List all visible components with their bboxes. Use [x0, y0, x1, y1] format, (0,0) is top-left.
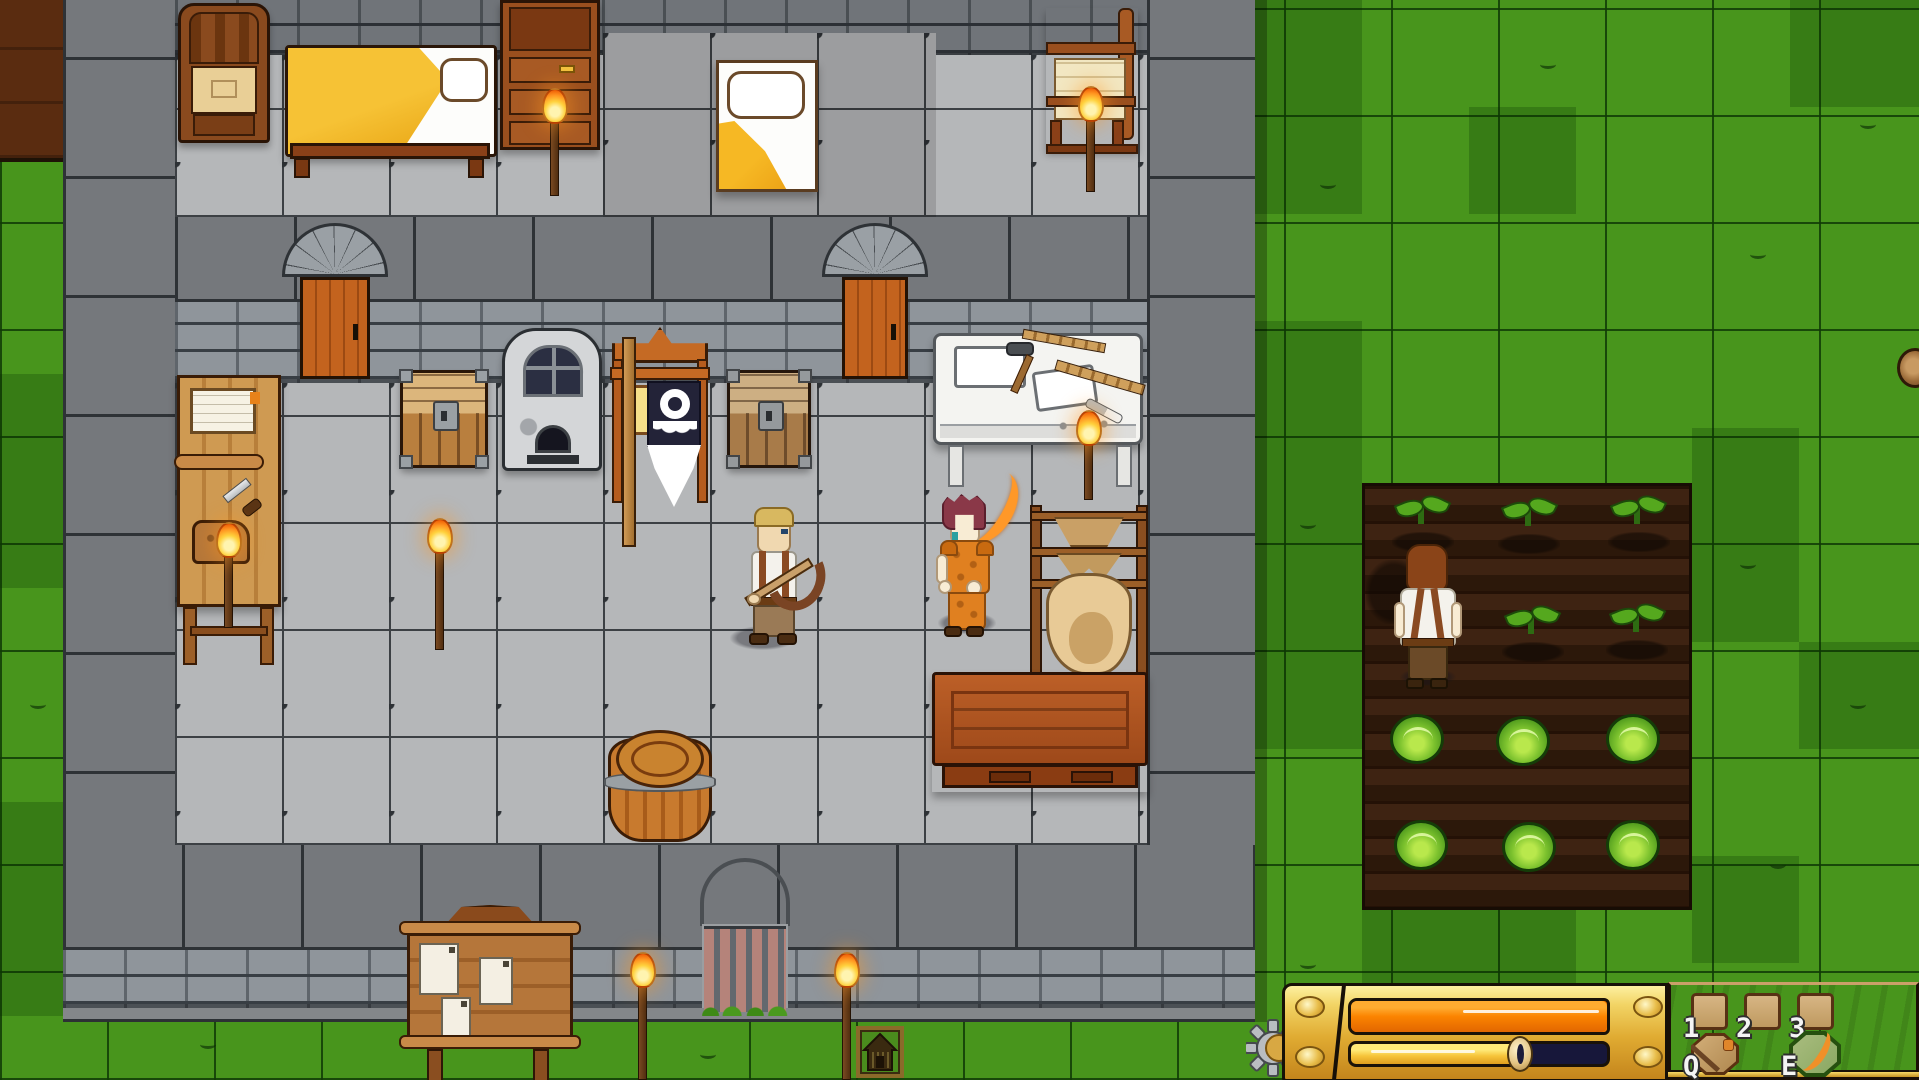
- soil-mound: [1498, 534, 1560, 554]
- hotbar-key-e: E: [1781, 1053, 1797, 1080]
- rail-slat: [1071, 771, 1113, 783]
- building-shadow: [1255, 0, 1267, 1022]
- bottom-wall-lip: [63, 1008, 1255, 1022]
- chest-corner: [798, 369, 812, 383]
- farmer-shoe: [1430, 678, 1448, 689]
- chest-corner: [798, 455, 812, 469]
- measuring-stick: [1022, 329, 1106, 353]
- board-cap: [399, 1035, 581, 1049]
- grass-tuft: [1300, 960, 1316, 969]
- progress-bar-fill: [1351, 1044, 1530, 1064]
- torch-pole: [1086, 114, 1095, 192]
- furnace-window: [523, 345, 583, 397]
- grass-shade-tile: [0, 802, 63, 1016]
- torch-pole: [224, 550, 233, 628]
- hotbar-key-2: 2: [1736, 1015, 1752, 1042]
- grass-shade-tile: [1799, 642, 1919, 749]
- blond-villager[interactable]: [733, 505, 803, 651]
- house-sign[interactable]: [856, 1026, 904, 1078]
- work-table[interactable]: [932, 672, 1148, 792]
- grass-tuft: [1540, 60, 1556, 69]
- plank-door[interactable]: [842, 277, 908, 379]
- farmer-arm: [1451, 602, 1462, 638]
- chest-corner: [399, 369, 413, 383]
- gear-emblem-hole: [668, 397, 682, 411]
- chest-corner: [475, 455, 489, 469]
- cabbage-crop[interactable]: [1496, 716, 1550, 766]
- posted-note[interactable]: [419, 943, 459, 995]
- warrior-legs: [948, 592, 986, 630]
- torch-pole: [550, 116, 559, 196]
- wooden-chest[interactable]: [727, 370, 811, 468]
- crop-seedling[interactable]: [1633, 616, 1639, 632]
- soil-mound: [1608, 532, 1670, 552]
- grass-shade-tile: [1255, 0, 1362, 214]
- bed-leg: [294, 158, 310, 178]
- grass-tuft: [1860, 120, 1876, 129]
- grass-tuft: [1770, 860, 1786, 869]
- chest-corner: [726, 455, 740, 469]
- cabbage-crop[interactable]: [1394, 820, 1448, 870]
- energy-bar-fill: [1351, 1001, 1607, 1032]
- dresser-drawer: [509, 57, 591, 83]
- stretched-hide: [1046, 573, 1132, 675]
- crop-seedling[interactable]: [1634, 508, 1640, 524]
- furnace-mouth: [535, 425, 571, 453]
- yellow-bed[interactable]: [285, 45, 497, 157]
- warrior-shoulder: [976, 540, 994, 556]
- chest-clasp: [758, 401, 784, 431]
- farmer-hair: [1406, 544, 1448, 592]
- barrel[interactable]: [608, 728, 712, 842]
- chest-corner: [475, 369, 489, 383]
- rack-post: [1030, 505, 1042, 675]
- guild-banner-stand: [610, 327, 710, 549]
- energy-bar-shine: [1463, 1010, 1599, 1013]
- panel-chamfer: [1332, 986, 1346, 1079]
- seed-marker-icon[interactable]: [1507, 1036, 1533, 1072]
- progress-bar-frame: [1348, 1041, 1610, 1067]
- chair-seat-cross: [211, 80, 237, 98]
- cabbage-crop[interactable]: [1606, 820, 1660, 870]
- rack-post: [1136, 505, 1148, 675]
- stone-furnace[interactable]: [502, 328, 602, 471]
- hotbar-key-1: 1: [1683, 1015, 1699, 1042]
- bed-pillow: [440, 58, 488, 102]
- warrior-shoe: [944, 626, 962, 637]
- rolling-pin: [174, 454, 264, 470]
- door-handle: [891, 324, 896, 340]
- small-hide: [1054, 517, 1124, 547]
- mason-table-leg: [1116, 445, 1132, 487]
- chair-back-slats: [189, 12, 259, 64]
- chest-corner: [399, 455, 413, 469]
- torch-pole: [435, 546, 444, 650]
- panel-rivet: [1633, 1046, 1663, 1068]
- dirt-patch: [0, 0, 63, 162]
- villager-shoe: [777, 633, 797, 645]
- chest-clasp: [433, 401, 459, 431]
- mason-table-leg: [948, 445, 964, 487]
- status-panel: [1282, 983, 1668, 1080]
- door-handle: [353, 324, 358, 340]
- torch-flame: [427, 518, 453, 554]
- mallet-head: [1006, 342, 1034, 356]
- bed-blanket: [288, 48, 448, 154]
- crop-seedling[interactable]: [1528, 618, 1534, 634]
- farmer-arm: [1394, 602, 1405, 638]
- hotbar-panel: 1 2 3 Q E: [1668, 982, 1919, 1080]
- dresser-handle: [559, 65, 575, 73]
- farmer[interactable]: [1396, 544, 1460, 692]
- torch-pole: [638, 980, 647, 1080]
- work-table-top: [932, 672, 1148, 766]
- torch-pole: [842, 980, 851, 1080]
- notice-board[interactable]: [399, 905, 581, 1080]
- panel-rivet: [1633, 996, 1663, 1018]
- tanning-rack[interactable]: [1030, 503, 1148, 675]
- panel-rivet: [1295, 1046, 1325, 1068]
- warrior-shoe: [966, 626, 984, 637]
- farmer-shoe: [1406, 678, 1424, 689]
- posted-note[interactable]: [441, 997, 471, 1039]
- grass-shade-tile: [1692, 428, 1799, 642]
- hide-patch: [1069, 612, 1113, 664]
- crop-seedling[interactable]: [1418, 508, 1424, 524]
- farmer-legs: [1408, 646, 1448, 680]
- white-bed-pillow: [727, 71, 805, 119]
- furnace-hearth: [527, 455, 579, 464]
- cabbage-crop[interactable]: [1502, 822, 1556, 872]
- torch-pole: [1084, 438, 1093, 500]
- bookmark: [250, 392, 260, 404]
- energy-bar-frame: [1348, 998, 1610, 1035]
- seed-marker-core: [1517, 1044, 1524, 1064]
- cabbage-crop[interactable]: [1390, 714, 1444, 764]
- grass-shade-tile: [1790, 0, 1919, 107]
- grass-tuft: [1300, 520, 1316, 529]
- grass-tuft: [1320, 180, 1336, 189]
- villager-hair: [754, 507, 794, 527]
- grass-shade-tile: [1692, 856, 1799, 963]
- knife-handle: [241, 497, 264, 518]
- grass-tuft: [700, 1050, 716, 1059]
- soil-mound: [1606, 640, 1668, 660]
- board-leg: [533, 1049, 549, 1080]
- crop-seedling[interactable]: [1525, 510, 1531, 526]
- torch-flame: [542, 88, 568, 124]
- chest-corner: [726, 369, 740, 383]
- panel-rivet: [1295, 996, 1325, 1018]
- wooden-chest[interactable]: [400, 370, 488, 468]
- throne-chair[interactable]: [178, 3, 270, 143]
- villager-eye: [781, 529, 788, 534]
- grass-shade-tile: [1469, 107, 1576, 214]
- banner-cloth: [647, 381, 701, 447]
- bottom-wall-bricks: [63, 950, 1255, 1008]
- rail-slat: [989, 771, 1031, 783]
- grass-tuft: [1750, 250, 1766, 259]
- plank-door[interactable]: [300, 277, 370, 379]
- white-bed[interactable]: [716, 60, 818, 192]
- posted-note[interactable]: [479, 957, 513, 1005]
- bakers-table-leg: [183, 607, 197, 665]
- grass-shade-tile: [1255, 321, 1362, 749]
- torch-flame: [1078, 86, 1104, 122]
- tool-head: [1723, 1039, 1734, 1051]
- red-haired-warrior[interactable]: [936, 492, 1016, 642]
- board-leg: [427, 1049, 443, 1080]
- grass-tuft: [200, 1040, 216, 1049]
- house-icon: [862, 1032, 898, 1072]
- grass-tuft: [30, 700, 46, 709]
- bed-leg: [468, 158, 484, 178]
- gate-grass-tufts: [702, 1000, 788, 1016]
- cabbage-crop[interactable]: [1606, 714, 1660, 764]
- villager-hand: [747, 593, 761, 605]
- knife: [222, 478, 251, 504]
- stonemason-table[interactable]: [933, 333, 1143, 445]
- banner-pole: [622, 337, 636, 547]
- barrel-top-ring: [631, 741, 689, 777]
- work-table-panel: [951, 691, 1129, 749]
- hotbar-key-q: Q: [1683, 1053, 1699, 1080]
- chair-front-rail: [193, 114, 255, 136]
- work-table-rail: [942, 764, 1138, 788]
- grass-shade-tile: [0, 374, 63, 588]
- progress-bar-shine: [1371, 1050, 1475, 1053]
- recipe-book: [190, 388, 256, 434]
- gear-emblem-teeth: [653, 421, 697, 445]
- torch-flame: [630, 952, 656, 988]
- torch-flame: [1076, 410, 1102, 446]
- bottom-wall-upper: [63, 845, 1255, 950]
- loom-top-bar: [1046, 42, 1136, 55]
- grass-tuft: [1740, 560, 1756, 569]
- villager-shoe: [749, 633, 769, 645]
- bakers-table-leg: [260, 607, 274, 665]
- yellow-bed-frame: [290, 143, 490, 159]
- torch-flame: [834, 952, 860, 988]
- soil-mound: [1502, 642, 1564, 662]
- dresser-top-panel: [509, 7, 591, 51]
- grass-tuft: [1850, 700, 1866, 709]
- warrior-earring: [952, 532, 958, 540]
- game-viewport: 1 2 3 Q E: [0, 0, 1919, 1080]
- torch-flame: [216, 522, 242, 558]
- barrel-top: [616, 730, 704, 788]
- banner-pennant: [647, 445, 701, 507]
